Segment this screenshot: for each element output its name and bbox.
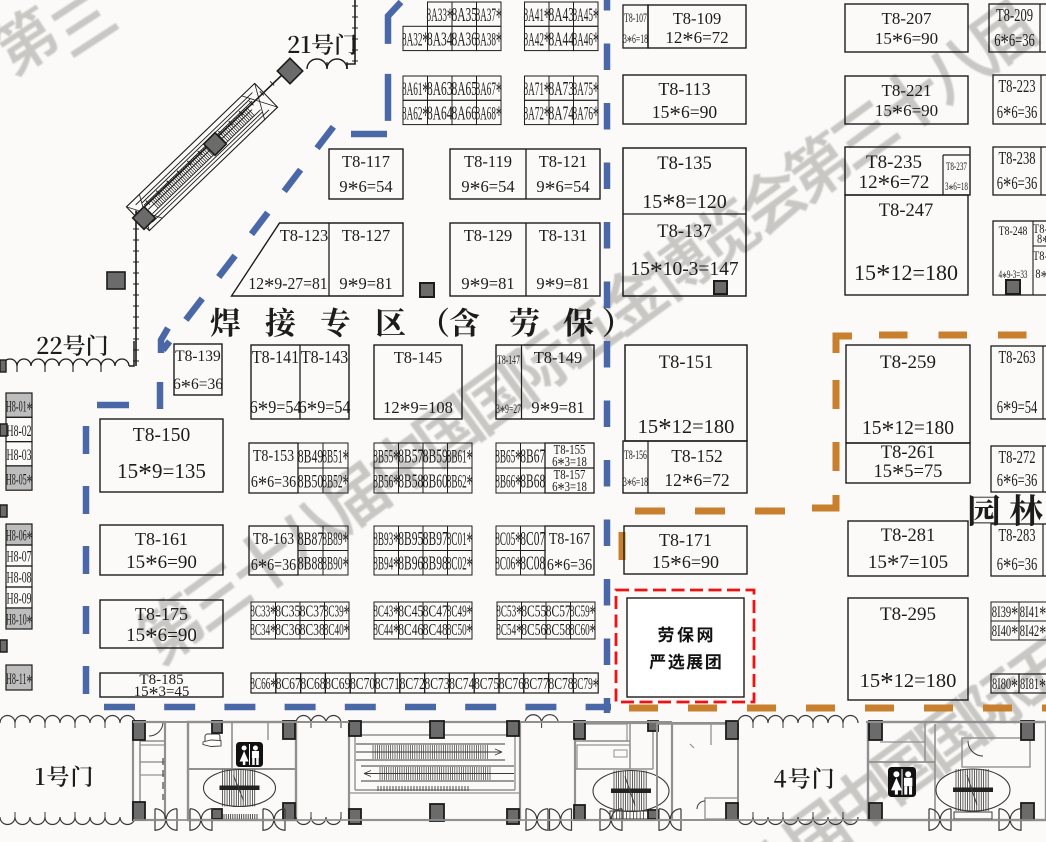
svg-text:8C37: 8C37: [300, 602, 325, 621]
svg-text:8A43: 8A43: [548, 5, 574, 26]
svg-text:8C56: 8C56: [521, 621, 546, 640]
svg-text:8B88: 8B88: [298, 554, 323, 575]
svg-text:H8-07: H8-07: [6, 547, 31, 565]
svg-text:T8-163: T8-163: [253, 530, 295, 548]
svg-text:T8-119: T8-119: [464, 152, 512, 171]
svg-text:T8-223: T8-223: [998, 77, 1035, 97]
svg-text:T8-272: T8-272: [998, 448, 1035, 468]
svg-text:T8-156: T8-156: [624, 449, 647, 462]
svg-text:8C48: 8C48: [423, 621, 448, 640]
svg-text:8C58: 8C58: [546, 621, 571, 640]
svg-text:8C78: 8C78: [548, 675, 573, 694]
svg-text:T8-127: T8-127: [342, 226, 391, 245]
svg-text:8C75: 8C75: [474, 675, 499, 694]
svg-text:H8-02: H8-02: [6, 421, 31, 439]
svg-text:T8-248: T8-248: [999, 225, 1028, 239]
svg-text:8B87: 8B87: [298, 529, 323, 550]
svg-text:H8-09: H8-09: [6, 589, 31, 607]
svg-text:T8-207: T8-207: [881, 9, 932, 28]
svg-text:T8-235: T8-235: [866, 152, 922, 173]
svg-text:8C38: 8C38: [300, 621, 325, 640]
svg-text:T8-171: T8-171: [659, 530, 712, 550]
svg-text:T8-143: T8-143: [301, 347, 348, 367]
svg-text:T8-2: T8-2: [1033, 249, 1046, 263]
svg-text:8B98: 8B98: [423, 554, 448, 575]
svg-text:T8-295: T8-295: [880, 604, 936, 625]
svg-text:8C73: 8C73: [424, 675, 449, 694]
svg-text:8C55: 8C55: [521, 602, 546, 621]
svg-text:8B97: 8B97: [423, 529, 448, 550]
svg-text:T8-139: T8-139: [175, 348, 221, 365]
svg-text:8B57: 8B57: [398, 447, 423, 468]
svg-text:8C71: 8C71: [375, 675, 400, 694]
svg-text:8B59: 8B59: [423, 447, 448, 468]
svg-text:8C67: 8C67: [276, 675, 301, 694]
svg-text:T8-161: T8-161: [135, 529, 188, 549]
svg-text:T8-107: T8-107: [624, 12, 647, 25]
svg-text:8B60: 8B60: [423, 472, 448, 493]
svg-text:8B49: 8B49: [298, 447, 323, 468]
svg-text:8C57: 8C57: [546, 602, 571, 621]
svg-text:T8-247: T8-247: [879, 201, 933, 221]
svg-text:H8-03: H8-03: [6, 446, 31, 464]
svg-text:T8-153: T8-153: [253, 447, 295, 465]
svg-text:8C35: 8C35: [275, 602, 300, 621]
svg-text:8A74: 8A74: [548, 103, 574, 124]
svg-text:T8-237: T8-237: [946, 160, 967, 173]
svg-text:8A73: 8A73: [548, 79, 574, 100]
svg-text:8A35: 8A35: [451, 5, 477, 26]
svg-text:T8-221: T8-221: [881, 81, 931, 100]
svg-text:8C45: 8C45: [398, 602, 423, 621]
svg-text:T8-117: T8-117: [342, 152, 390, 171]
svg-text:T8-238: T8-238: [998, 149, 1035, 169]
svg-text:T8-151: T8-151: [659, 353, 713, 373]
svg-text:T8-149: T8-149: [534, 348, 583, 367]
svg-text:T8-261: T8-261: [881, 443, 935, 463]
svg-text:8B96: 8B96: [398, 554, 423, 575]
svg-text:T8-259: T8-259: [880, 352, 936, 373]
svg-text:T8-141: T8-141: [252, 347, 299, 367]
svg-text:T8-123: T8-123: [280, 226, 329, 245]
svg-text:8C72: 8C72: [400, 675, 425, 694]
svg-text:T8-135: T8-135: [657, 154, 711, 174]
svg-text:T8-263: T8-263: [998, 348, 1035, 368]
svg-text:8C74: 8C74: [449, 675, 475, 694]
svg-text:T8-113: T8-113: [658, 79, 710, 99]
svg-text:8C46: 8C46: [398, 621, 423, 640]
svg-text:8C77: 8C77: [524, 675, 549, 694]
svg-text:8B95: 8B95: [398, 529, 423, 550]
svg-text:T8-109: T8-109: [673, 9, 722, 28]
svg-text:8B58: 8B58: [398, 472, 423, 493]
svg-text:T8-137: T8-137: [657, 222, 711, 242]
svg-text:8C08: 8C08: [520, 554, 545, 575]
svg-text:8B50: 8B50: [298, 472, 323, 493]
svg-text:T8-129: T8-129: [464, 226, 513, 245]
svg-text:8C68: 8C68: [300, 675, 325, 694]
svg-text:T8-167: T8-167: [549, 530, 591, 548]
svg-text:T8-209: T8-209: [996, 6, 1033, 26]
svg-text:T8-152: T8-152: [671, 446, 723, 466]
svg-text:T8-150: T8-150: [133, 425, 190, 446]
svg-text:8C07: 8C07: [520, 529, 545, 550]
svg-text:8A63: 8A63: [427, 79, 453, 100]
svg-text:8A66: 8A66: [451, 103, 477, 124]
svg-text:T8-121: T8-121: [539, 152, 588, 171]
svg-text:8A36: 8A36: [451, 29, 477, 50]
svg-text:H8-08: H8-08: [6, 568, 31, 586]
svg-text:8A44: 8A44: [548, 29, 574, 50]
svg-text:8B68: 8B68: [520, 472, 545, 493]
svg-text:T8-283: T8-283: [998, 526, 1035, 546]
svg-text:T8-145: T8-145: [394, 348, 443, 367]
svg-text:T8-147: T8-147: [497, 354, 520, 367]
svg-text:8C69: 8C69: [325, 675, 350, 694]
svg-text:8B67: 8B67: [520, 447, 545, 468]
svg-text:T8-281: T8-281: [881, 526, 935, 546]
svg-text:8A65: 8A65: [451, 79, 477, 100]
svg-text:T8-131: T8-131: [539, 226, 588, 245]
svg-text:T8-175: T8-175: [135, 604, 188, 624]
svg-text:8C70: 8C70: [350, 675, 375, 694]
svg-text:8C36: 8C36: [275, 621, 300, 640]
svg-text:8A34: 8A34: [427, 29, 453, 50]
svg-text:8A64: 8A64: [427, 103, 453, 124]
svg-text:8C47: 8C47: [423, 602, 448, 621]
svg-text:8C76: 8C76: [499, 675, 524, 694]
